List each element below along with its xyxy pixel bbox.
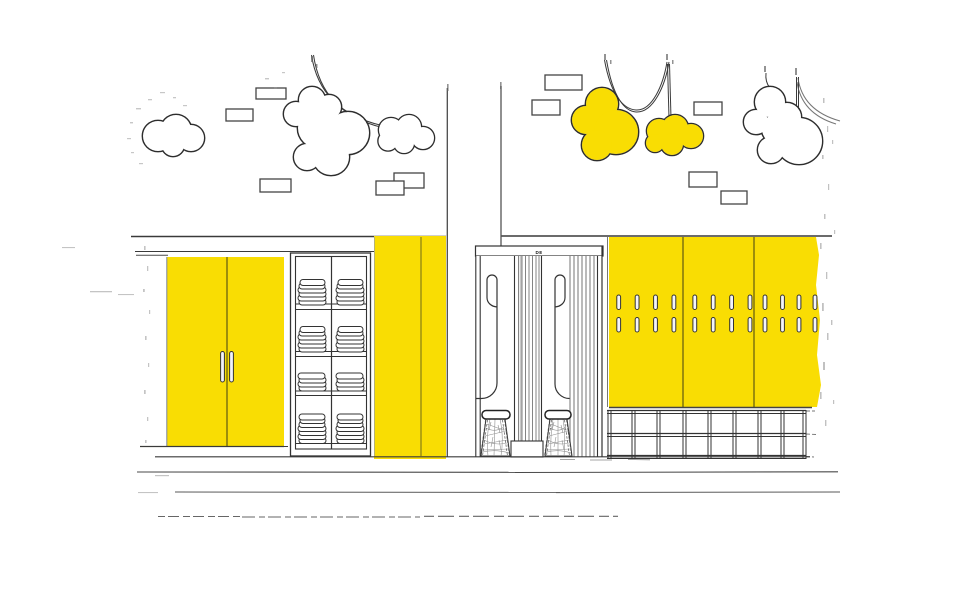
svg-text:D8: D8: [536, 250, 543, 255]
